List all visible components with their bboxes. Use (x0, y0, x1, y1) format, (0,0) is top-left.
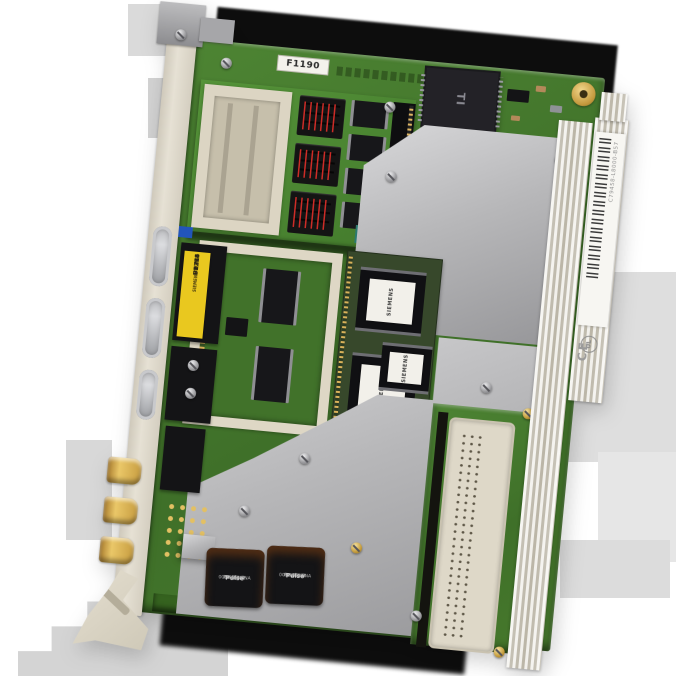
shield-screw (480, 382, 492, 394)
relay-component (292, 143, 342, 187)
passive-component (511, 115, 520, 121)
card-slot-frame (191, 84, 292, 236)
power-module (160, 426, 206, 494)
passive-component (550, 105, 563, 113)
transformer-patent: PAT.PEND. (284, 573, 307, 579)
memory-chip: SIEMENS (378, 342, 432, 395)
product-photo-circuit-board: F1190 TI (0, 0, 676, 676)
blue-component (178, 226, 193, 238)
board-assembly: F1190 TI (106, 28, 665, 676)
lan-transformer: Pulse PE-68482 0012-N CHINA PAT.PEND. (204, 548, 264, 608)
small-ic (507, 89, 530, 103)
memory-chip-brand-text: SIEMENS (401, 354, 410, 383)
shield-screw (299, 453, 311, 465)
passive-component (536, 86, 547, 93)
mounting-bracket-tab (199, 17, 235, 44)
sma-coax-connector (102, 496, 138, 525)
power-module (164, 346, 217, 424)
sma-coax-connector (99, 536, 135, 565)
test-label-line3: P1218 (192, 254, 201, 276)
small-ic (225, 317, 249, 337)
shield-screw (239, 505, 251, 517)
model-number-text: F1190 (286, 59, 321, 72)
slot-groove (218, 103, 234, 213)
relay-component (296, 95, 346, 139)
slot-groove (243, 106, 259, 216)
memory-chip-label: SIEMENS (387, 352, 424, 385)
soic-chip (251, 346, 294, 403)
soic-chip (258, 268, 301, 325)
relay-component (287, 191, 337, 237)
card-guide-rail-tab (599, 92, 628, 122)
din-pin-field (439, 430, 483, 639)
shield-screw (385, 171, 397, 183)
memory-chip-label: SIEMENS (366, 279, 416, 325)
ti-dram-chip: TI (422, 68, 498, 131)
connector-screw (493, 646, 505, 658)
sma-coax-connector (106, 456, 142, 485)
ce-mark-text: CE (575, 340, 591, 362)
memory-chip-brand-text: SIEMENS (386, 287, 395, 316)
lan-transformer: Pulse PE-68482 0012-N CHINA PAT.PEND. (265, 545, 325, 605)
memory-chip: SIEMENS (355, 267, 427, 337)
ti-logo: TI (453, 92, 467, 107)
background-shadow-block (66, 440, 112, 540)
transformer-patent: PAT.PEND. (223, 575, 246, 581)
